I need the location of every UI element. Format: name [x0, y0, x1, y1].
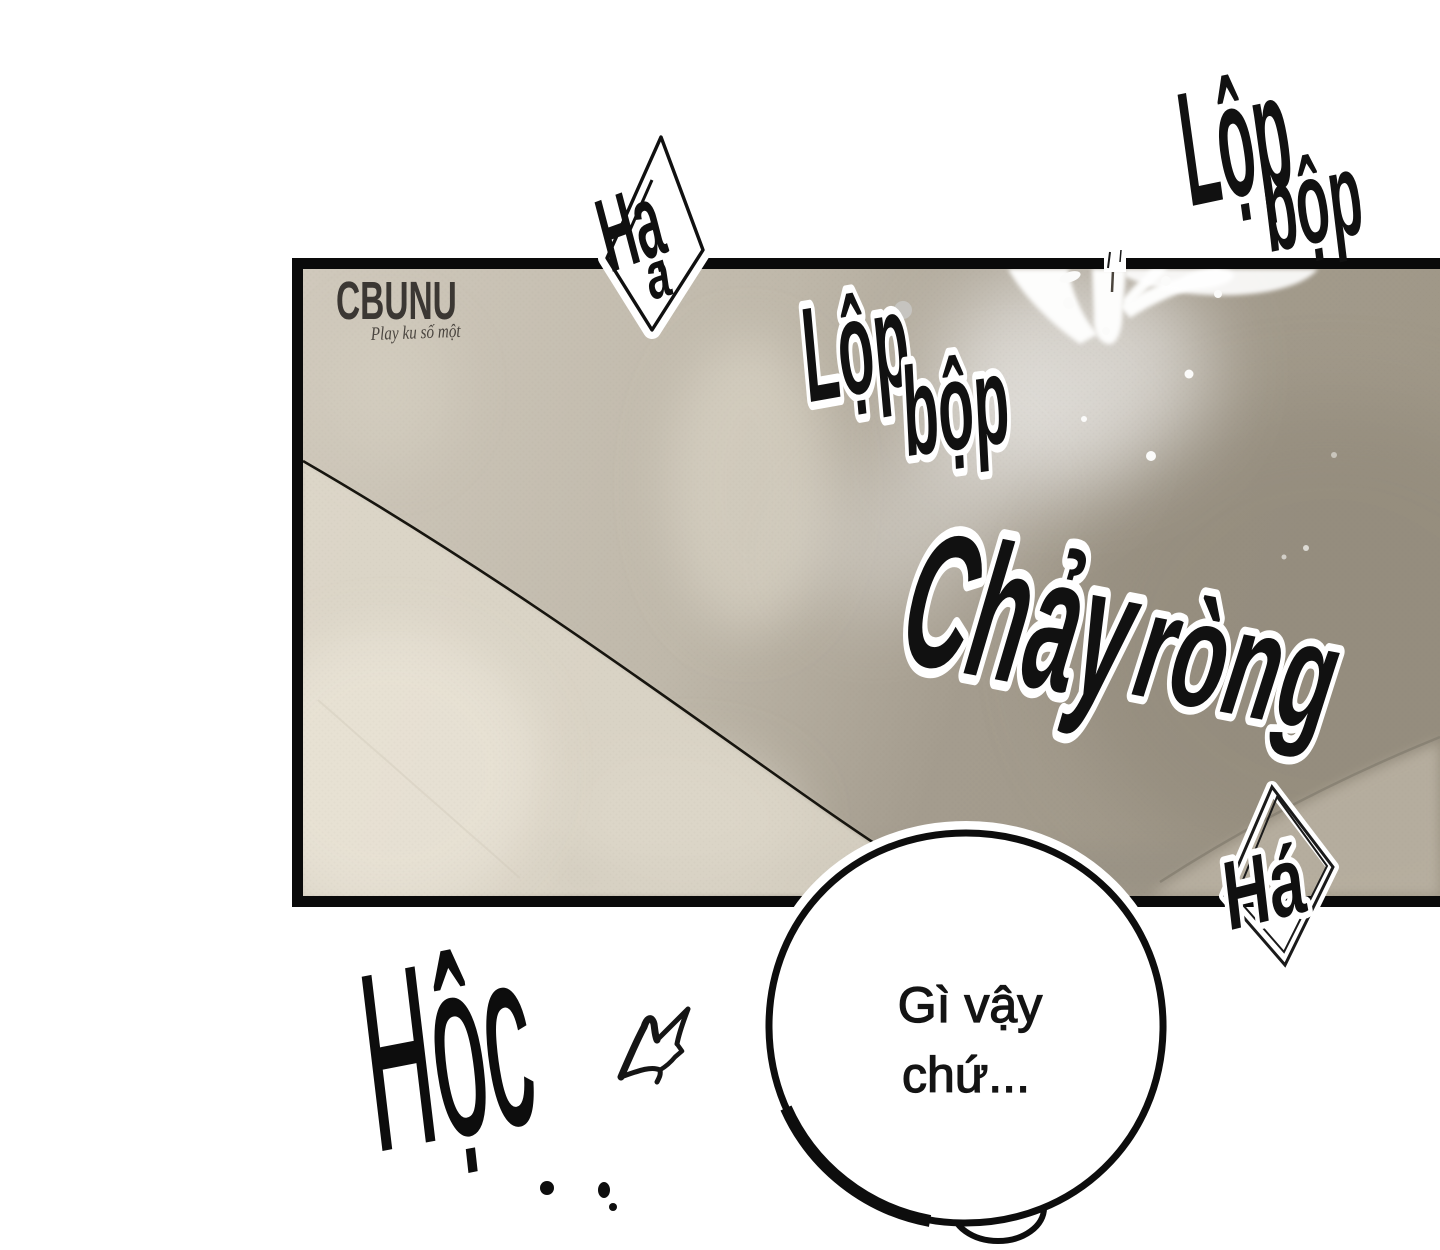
- svg-text:Gì vậy: Gì vậy: [898, 977, 1042, 1033]
- svg-text:Play ku số một: Play ku số một: [370, 320, 462, 344]
- svg-text:bộp: bộp: [1249, 128, 1374, 277]
- svg-text:chứ...: chứ...: [902, 1047, 1030, 1103]
- svg-text:bộp: bộp: [892, 328, 1017, 483]
- svg-text:Hộc: Hộc: [337, 897, 555, 1203]
- svg-text:Chảy: Chảy: [888, 489, 1157, 744]
